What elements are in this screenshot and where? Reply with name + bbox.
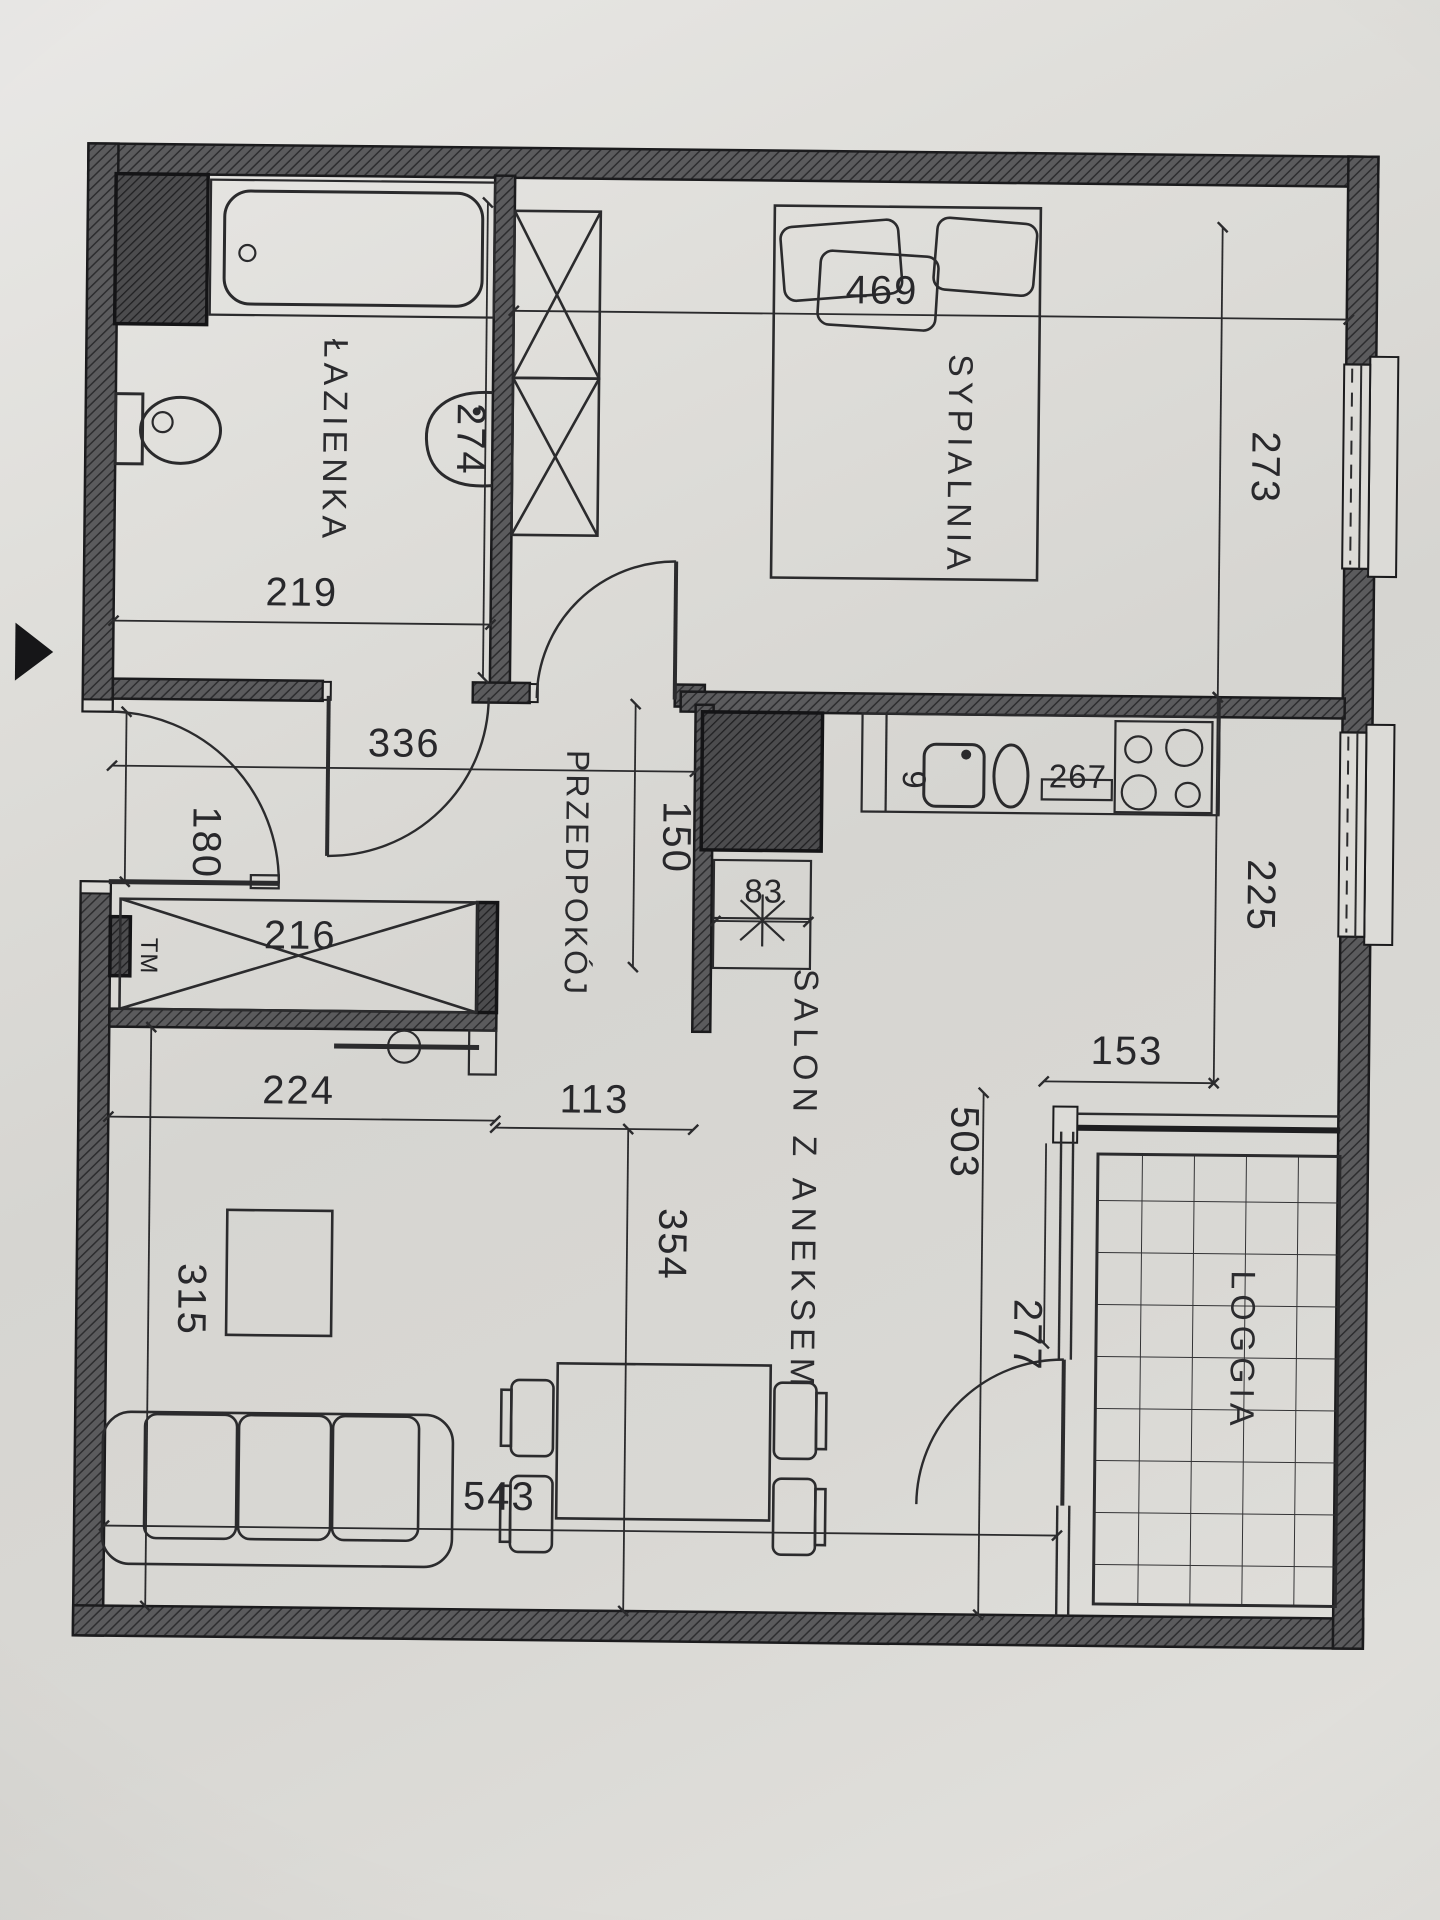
- dim-267: 267: [1049, 757, 1107, 795]
- chair-back: [501, 1390, 512, 1446]
- loggia-structure: [1048, 1107, 1340, 1619]
- dim-line-153: [1044, 1081, 1214, 1083]
- dim-line-469: [514, 311, 1349, 320]
- dim-line-224: [108, 1117, 495, 1121]
- wall-right-a: [1346, 157, 1378, 365]
- dim-216: 216: [264, 913, 337, 958]
- dim-line-225: [1214, 697, 1218, 1083]
- loggia-glazing-left-4: [1068, 1506, 1069, 1616]
- bed: [771, 206, 1041, 581]
- counter-divider-1: [886, 714, 887, 812]
- closet-x-2: [511, 378, 599, 536]
- toilet-bowl: [140, 397, 221, 464]
- room-label-bathroom: ŁAZIENKA: [314, 339, 354, 544]
- dim-line-354: [623, 1129, 628, 1611]
- bathtub-drain: [239, 245, 255, 261]
- dim-224: 224: [262, 1068, 335, 1113]
- wall-bathroom-hall: [113, 679, 323, 701]
- chair-back: [816, 1393, 827, 1449]
- sofa-cushion-2: [238, 1415, 331, 1540]
- bathroom-door-arc: [327, 696, 489, 858]
- loggia-door-leaf: [1062, 1360, 1064, 1506]
- entrance-arrow-icon: [15, 623, 54, 681]
- shaft-pillar-bathroom: [115, 174, 209, 325]
- floor-plan-svg: 469 273 274 219 336 150 180 216 224 113 …: [0, 0, 1440, 1920]
- entry-door-leaf: [109, 882, 279, 884]
- wall-bottom: [73, 1605, 1363, 1649]
- wall-left-upper: [83, 143, 119, 711]
- hall-small-fixture: [469, 1030, 496, 1074]
- window-sill: [1368, 357, 1398, 577]
- entry-jamb-top: [83, 699, 113, 711]
- dim-line-273: [1218, 227, 1223, 697]
- window-bedroom: [1342, 357, 1398, 578]
- counter-outline: [862, 713, 1220, 815]
- burner-4: [1176, 783, 1200, 807]
- dim-9: 9: [896, 770, 933, 790]
- dim-line-315: [145, 1027, 151, 1606]
- wall-wardrobe-side: [476, 902, 497, 1012]
- toilet-tank: [115, 394, 143, 464]
- burner-2: [1166, 730, 1202, 766]
- dim-469: 469: [845, 268, 918, 313]
- bedroom-door-leaf: [675, 562, 676, 700]
- bathroom-door-leaf: [327, 696, 329, 856]
- bathtub-outline: [210, 180, 495, 318]
- dim-line-83: [715, 921, 808, 922]
- dim-273: 273: [1243, 431, 1288, 504]
- loggia-glazing-left-2: [1071, 1132, 1073, 1360]
- dim-line-336: [112, 766, 695, 772]
- room-label-loggia: LOGGIA: [1222, 1270, 1262, 1431]
- loggia-glazing-top-1: [1077, 1114, 1340, 1117]
- shaft-kitchen: [701, 712, 822, 851]
- clothes-rod: [334, 1046, 479, 1048]
- dim-180: 180: [184, 806, 229, 879]
- dim-225: 225: [1238, 859, 1283, 932]
- dim-83: 83: [744, 872, 783, 909]
- loggia-glazing-top-2: [1077, 1128, 1340, 1131]
- closet-x-1: [513, 211, 601, 379]
- kitchen-sink-tap: [961, 750, 971, 760]
- pillow-3: [933, 217, 1038, 297]
- room-label-hall: PRZEDPOKÓJ: [558, 750, 597, 997]
- dim-336: 336: [368, 721, 441, 766]
- burner-1: [1125, 736, 1151, 762]
- sofa-base: [102, 1412, 454, 1568]
- loggia-door-arc: [916, 1358, 1064, 1506]
- dim-503: 503: [942, 1106, 987, 1179]
- wall-stub-partition: [473, 682, 530, 703]
- chair-seat: [773, 1479, 816, 1555]
- dim-line-180: [125, 712, 127, 882]
- chair-seat: [774, 1383, 817, 1459]
- dining-chairs: [500, 1380, 827, 1555]
- dim-line-150: [633, 704, 636, 967]
- kitchen-sink-drainer: [994, 745, 1029, 807]
- coffee-table: [226, 1210, 332, 1336]
- window-sill: [1364, 725, 1394, 945]
- wall-right-b: [1342, 569, 1374, 733]
- room-label-bedroom: SYPIALNIA: [939, 354, 979, 575]
- dim-line-113: [495, 1128, 693, 1130]
- window-frame: [1338, 732, 1366, 936]
- dim-277: 277: [1005, 1299, 1050, 1372]
- loggia-floor-grid: [1093, 1154, 1340, 1607]
- floor-plan-photo: 469 273 274 219 336 150 180 216 224 113 …: [0, 0, 1440, 1920]
- room-label-living: SALON Z ANEKSEM: [782, 969, 824, 1394]
- window-frame: [1342, 365, 1370, 569]
- dim-543: 543: [463, 1474, 536, 1519]
- sofa-cushion-3: [332, 1416, 419, 1541]
- plan-tilt-wrapper: 469 273 274 219 336 150 180 216 224 113 …: [0, 0, 1440, 1920]
- entry-jamb-bottom: [81, 881, 111, 893]
- bathtub-inner: [224, 191, 483, 307]
- dim-219: 219: [265, 570, 338, 615]
- meter-label: TM: [135, 938, 162, 975]
- dim-153: 153: [1090, 1029, 1163, 1074]
- window-kitchen: [1338, 724, 1394, 945]
- burner-3: [1122, 775, 1156, 809]
- dim-315: 315: [169, 1263, 214, 1336]
- dim-150: 150: [654, 801, 699, 874]
- sofa-cushion-1: [144, 1414, 237, 1539]
- dim-line-543: [104, 1526, 1057, 1536]
- loggia-glazing-left-1: [1059, 1132, 1061, 1360]
- wall-left-lower: [73, 881, 111, 1635]
- dim-113: 113: [559, 1077, 629, 1122]
- chair-back: [815, 1489, 826, 1545]
- counter-end: [1219, 697, 1220, 815]
- dining-table: [556, 1363, 771, 1520]
- dim-354: 354: [650, 1208, 695, 1281]
- chair-seat: [511, 1380, 554, 1456]
- loggia-glazing-left-3: [1056, 1506, 1057, 1616]
- dim-274: 274: [448, 403, 493, 476]
- bedroom-door-arc: [537, 560, 676, 699]
- dim-line-219: [114, 621, 491, 625]
- toilet-flush: [152, 412, 172, 432]
